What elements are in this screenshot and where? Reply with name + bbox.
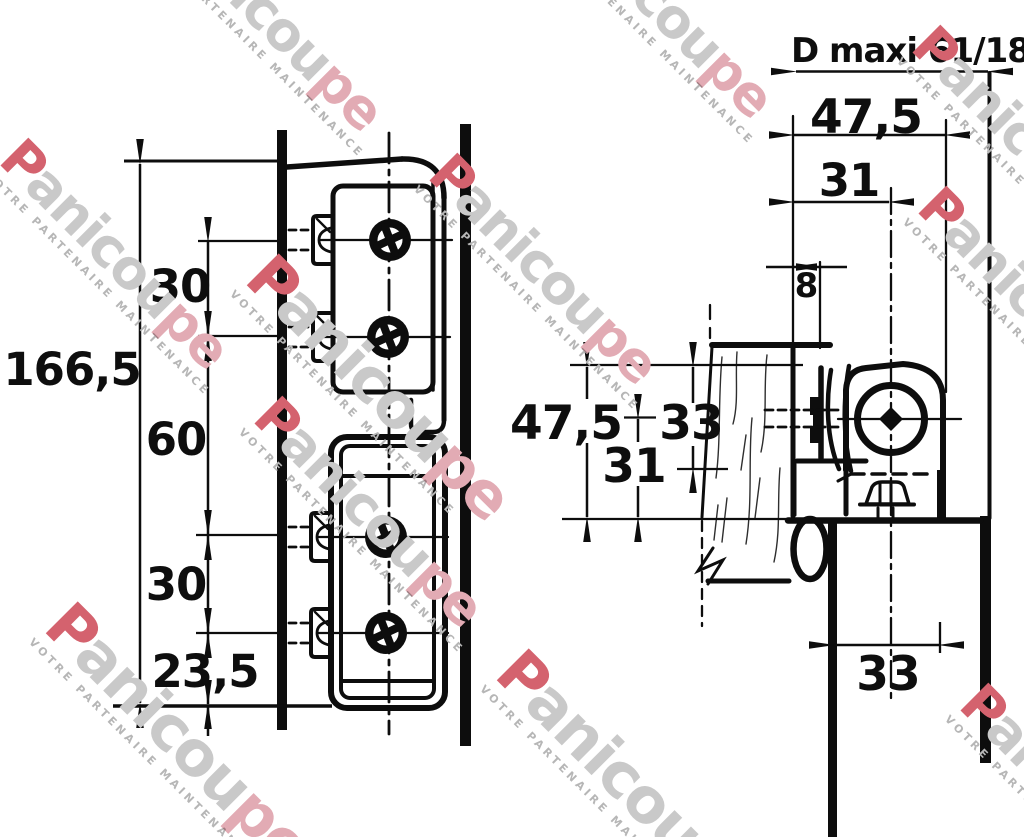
dim-bottom-offset-label: 23,5 bbox=[151, 645, 258, 698]
dim-screw-spacing-bottom-label: 30 bbox=[146, 558, 207, 611]
dim-height-upper-label: 33 bbox=[659, 396, 722, 451]
frame-inner-face bbox=[828, 523, 837, 837]
lower-leaf-inner bbox=[341, 446, 434, 698]
screw-top-1 bbox=[369, 219, 411, 261]
latch-detail bbox=[866, 482, 909, 504]
dim-leaf-gap-label: 60 bbox=[146, 413, 207, 466]
screw-bottom-1 bbox=[365, 516, 407, 558]
dim-frame-depth-label: 33 bbox=[856, 647, 919, 702]
screw-bottom-2 bbox=[365, 612, 407, 654]
dim-screw-spacing-top-label: 30 bbox=[150, 260, 211, 313]
screw-top-2 bbox=[367, 316, 409, 358]
side-view-dimensions bbox=[562, 72, 988, 654]
dim-pivot-offset-label: 31 bbox=[819, 154, 880, 207]
hinge-technical-drawing: 166,5 30 60 30 23,5 bbox=[0, 0, 1024, 837]
dim-leaf-offset-label: 8 bbox=[795, 266, 818, 306]
dim-overall-height-label: 166,5 bbox=[3, 343, 140, 396]
upper-leaf-plate bbox=[333, 186, 433, 392]
front-left-wall bbox=[277, 130, 287, 730]
front-view bbox=[277, 124, 471, 746]
dim-door-max-opening-label: D maxi 61/180° bbox=[791, 31, 1024, 71]
technical-drawing-page: 166,5 30 60 30 23,5 bbox=[0, 0, 1024, 837]
dim-height-lower-label: 31 bbox=[602, 439, 665, 494]
dim-overhang-total-label: 47,5 bbox=[810, 90, 922, 145]
wood-grain bbox=[714, 352, 780, 562]
seal-roller bbox=[794, 519, 827, 579]
front-right-wall bbox=[460, 124, 471, 746]
